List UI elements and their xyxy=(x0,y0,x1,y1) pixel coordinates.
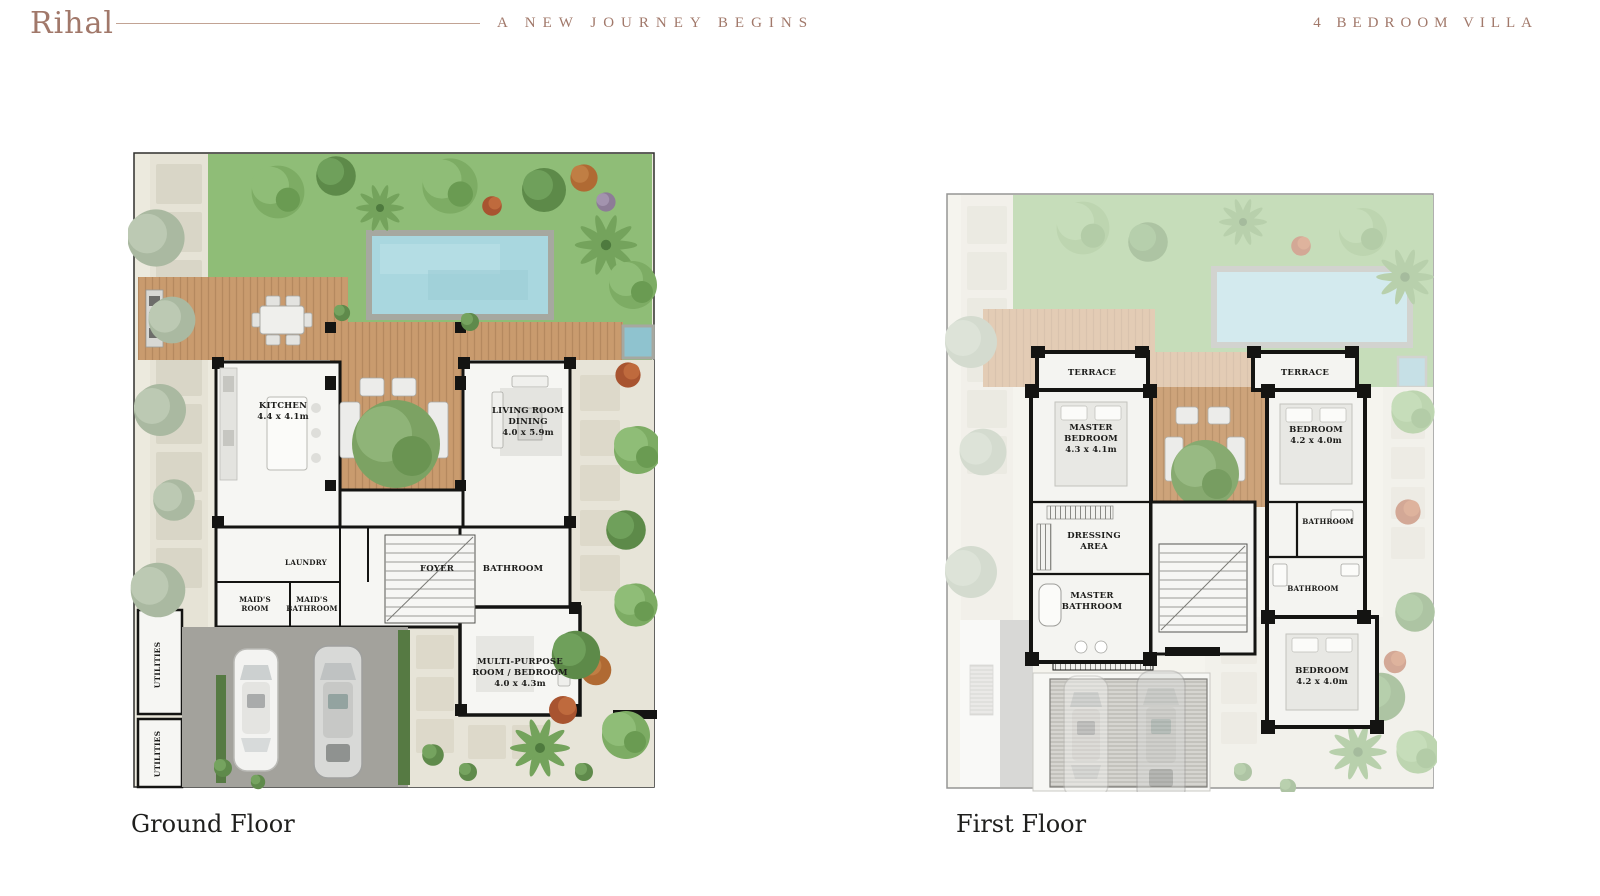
room-label-living-2: DINING xyxy=(508,417,547,427)
room-dims-bedroom-top: 4.2 x 4.0m xyxy=(1290,436,1342,446)
ground-floor-caption: Ground Floor xyxy=(131,810,295,838)
room-label-master-bathroom-2: BATHROOM xyxy=(1062,602,1123,612)
room-label-laundry: LAUNDRY xyxy=(285,558,328,567)
header-tagline: A NEW JOURNEY BEGINS xyxy=(497,15,814,32)
room-label-foyer: FOYER xyxy=(420,564,455,574)
gf-car-silver xyxy=(314,646,362,778)
ff-courtyard xyxy=(1151,387,1267,508)
room-label-multipurpose-1: MULTI-PURPOSE xyxy=(477,657,563,667)
gf-car-white xyxy=(234,649,278,771)
ground-floor-drawing: KITCHEN 4.4 x 4.1m LIVING ROOM DINING 4.… xyxy=(128,150,658,795)
room-label-maids-bathroom-1: MAID'S xyxy=(296,595,328,604)
room-label-maids-room-2: ROOM xyxy=(241,604,268,613)
room-label-kitchen: KITCHEN xyxy=(259,401,307,411)
room-label-terrace-right: TERRACE xyxy=(1281,368,1329,378)
ff-car-white-faded xyxy=(1064,676,1108,792)
ff-wardrobe-left xyxy=(1037,524,1051,570)
plan-type-label: 4 BEDROOM VILLA xyxy=(1313,15,1538,32)
room-label-bathroom-mid: BATHROOM xyxy=(1287,584,1338,593)
room-label-terrace-left: TERRACE xyxy=(1068,368,1116,378)
gf-right-stones xyxy=(580,375,620,591)
room-label-dressing-1: DRESSING xyxy=(1067,531,1121,541)
header-divider-line xyxy=(116,23,480,24)
page: { "header": { "brand": "Rihal", "tagline… xyxy=(0,0,1600,896)
ff-garage-pergola xyxy=(1033,662,1210,792)
room-label-maids-room-1: MAID'S xyxy=(239,595,271,604)
brand-logo: Rihal xyxy=(30,6,114,41)
room-label-multipurpose-2: ROOM / BEDROOM xyxy=(472,668,568,678)
room-label-utilities-1: UTILITIES xyxy=(153,642,162,688)
gf-stairs xyxy=(385,535,475,623)
room-dims-kitchen: 4.4 x 4.1m xyxy=(257,412,309,422)
first-floor-drawing: TERRACE TERRACE MASTER BEDROOM 4.3 x 4.1… xyxy=(943,192,1437,792)
room-label-maids-bathroom-2: BATHROOM xyxy=(286,604,337,613)
gf-courtyard-tree xyxy=(352,400,440,488)
room-dims-bedroom-bottom: 4.2 x 4.0m xyxy=(1296,677,1348,687)
room-dims-master-bedroom: 4.3 x 4.1m xyxy=(1065,445,1117,455)
room-dims-multipurpose: 4.0 x 4.3m xyxy=(494,679,546,689)
gf-hall xyxy=(340,490,463,527)
ff-wardrobe-top xyxy=(1047,506,1113,519)
room-label-master-bedroom-2: BEDROOM xyxy=(1064,434,1118,444)
room-label-bathroom-top: BATHROOM xyxy=(1302,517,1353,526)
room-dims-living: 4.0 x 5.9m xyxy=(502,428,554,438)
ff-stairs xyxy=(1159,544,1247,632)
room-label-master-bedroom-1: MASTER xyxy=(1069,423,1113,433)
room-label-bedroom-top: BEDROOM xyxy=(1289,425,1343,435)
gf-water-feature xyxy=(623,326,653,358)
room-label-bathroom: BATHROOM xyxy=(483,564,544,574)
first-floor-caption: First Floor xyxy=(956,810,1086,838)
gf-pool xyxy=(366,230,554,320)
ff-car-silver-faded xyxy=(1137,671,1185,792)
room-label-utilities-2: UTILITIES xyxy=(153,731,162,777)
ff-bathtub xyxy=(1039,584,1061,626)
room-label-bedroom-bottom: BEDROOM xyxy=(1295,666,1349,676)
room-label-dressing-2: AREA xyxy=(1079,542,1108,552)
room-label-master-bathroom-1: MASTER xyxy=(1070,591,1114,601)
room-label-living-1: LIVING ROOM xyxy=(492,406,564,416)
